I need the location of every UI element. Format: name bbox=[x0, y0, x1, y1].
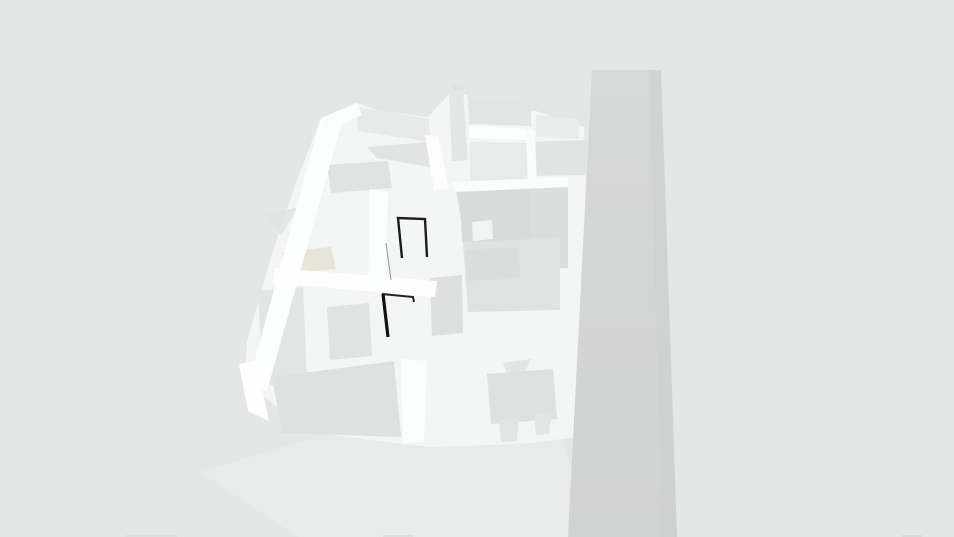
wall-mid-bottom bbox=[401, 359, 427, 443]
big-room-rug bbox=[460, 186, 531, 242]
big-room-white-table[interactable] bbox=[472, 220, 493, 241]
scene-canvas[interactable] bbox=[0, 0, 954, 537]
ground-shadow-wash bbox=[200, 432, 590, 537]
wall-right-bottom bbox=[556, 342, 570, 438]
sofa-block[interactable] bbox=[327, 161, 392, 193]
room-floor-top-far-right bbox=[536, 115, 579, 139]
room-floor-top-right-upper bbox=[468, 99, 531, 126]
mid-room-furniture-patch[interactable] bbox=[465, 247, 520, 281]
nightstand-block[interactable] bbox=[327, 303, 372, 360]
floorplan-3d-viewport[interactable] bbox=[0, 0, 954, 537]
wall-mid-vertical bbox=[368, 189, 388, 288]
dining-chair-right[interactable] bbox=[534, 412, 551, 435]
dining-chair-left[interactable] bbox=[499, 418, 519, 442]
room-floor-top-right-lower bbox=[530, 140, 586, 176]
